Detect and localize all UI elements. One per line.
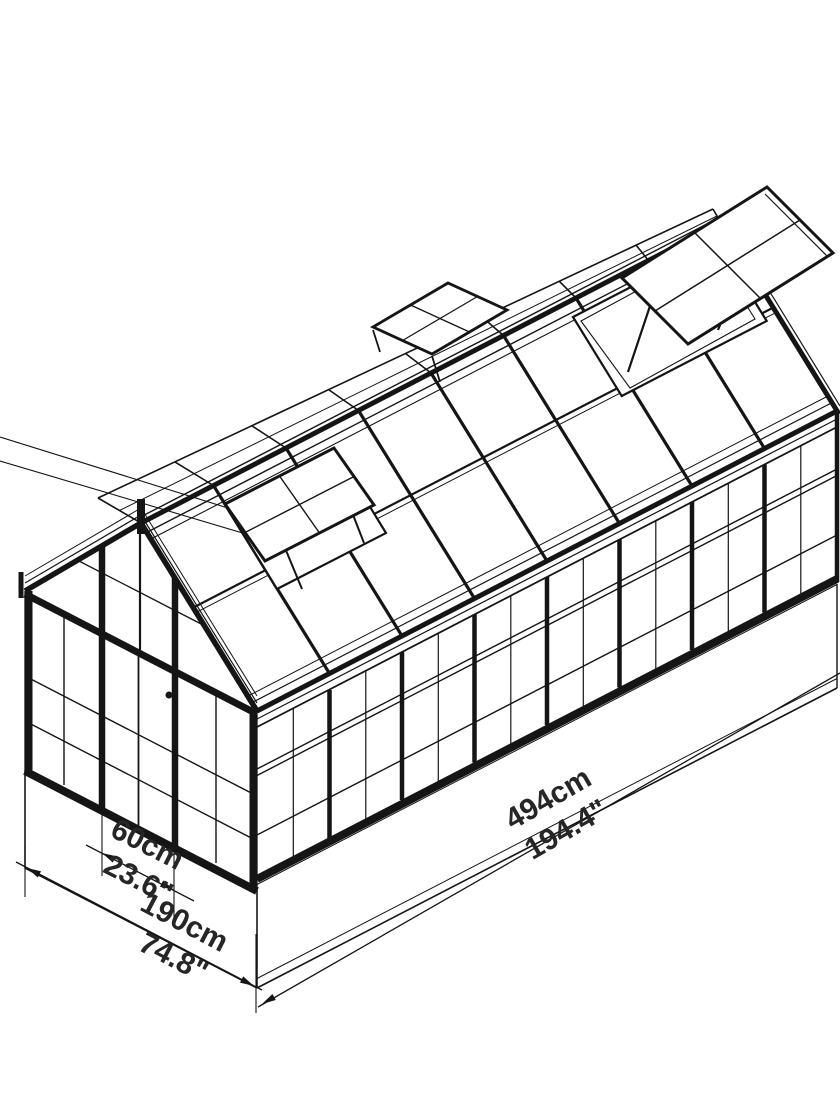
greenhouse-dimension-diagram: 60cm 23.6" 190cm 74.8" 494cm 194.4" (0, 0, 840, 1120)
door-handle (166, 692, 173, 699)
front-wall-rails (25, 676, 257, 841)
greenhouse-drawing: 60cm 23.6" 190cm 74.8" 494cm 194.4" (0, 0, 840, 1120)
